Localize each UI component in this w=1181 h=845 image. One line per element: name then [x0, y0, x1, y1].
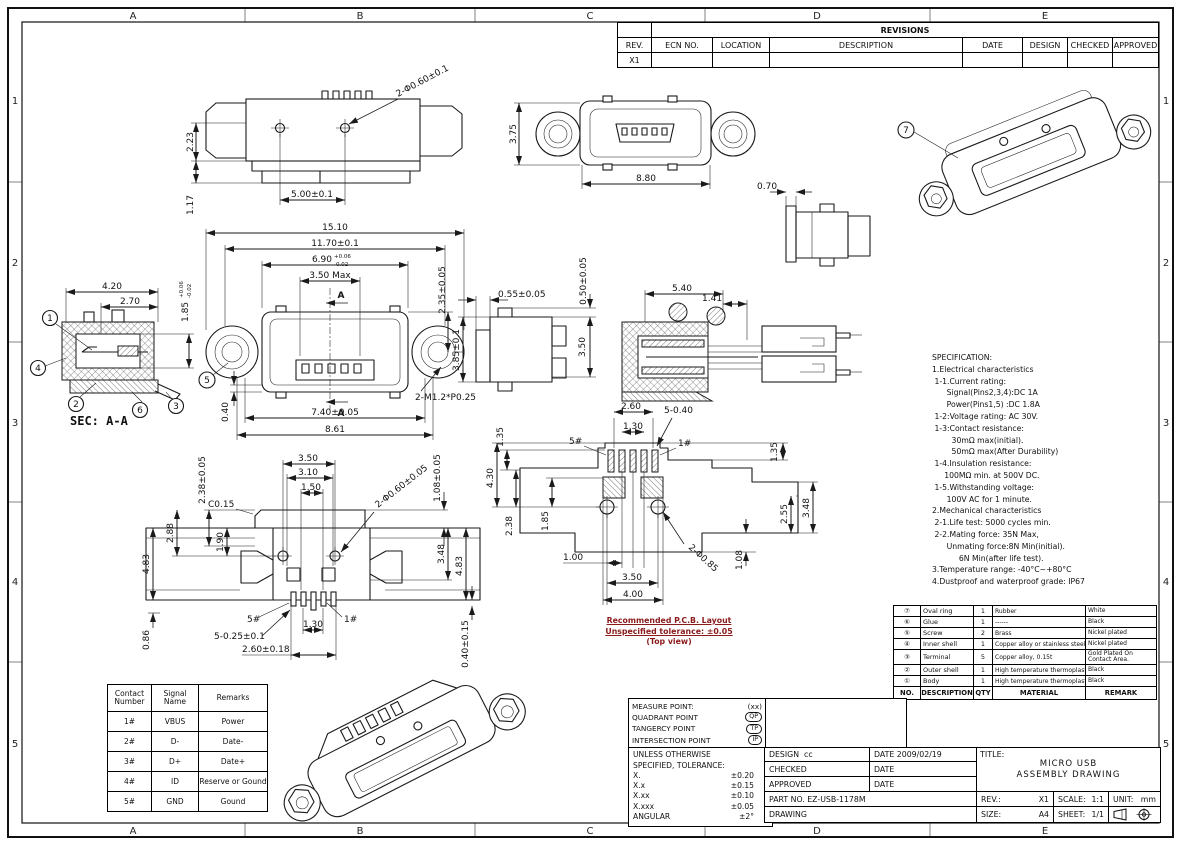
svg-text:3: 3 — [173, 402, 179, 412]
dim-label: 1.08±0.05 — [433, 454, 443, 502]
rev-row-date — [963, 53, 1022, 67]
dim-label: 0.50±0.05 — [579, 257, 589, 305]
section-arrow-label: A — [338, 291, 345, 301]
dim-label: 15.10 — [322, 223, 348, 233]
svg-text:E: E — [1042, 11, 1048, 22]
dim-tol: -0.02 — [334, 262, 348, 268]
contact-signal: GND — [152, 792, 198, 811]
dim-label: 1.41 — [702, 294, 722, 304]
view-side-small: 0.70 — [757, 182, 870, 266]
dim-label: 3.85±0.1 — [452, 329, 462, 371]
dim-label: 2-Φ0.60±0.1 — [395, 64, 451, 100]
pcb-layout-note: Recommended P.C.B. Layout Unspecified to… — [590, 616, 748, 648]
spec-line: Unmating force:8N Min(initial). — [932, 541, 1170, 553]
dim-label: 0.70 — [757, 182, 777, 192]
bom-qty: 1 — [974, 639, 992, 649]
spec-line: 2-2.Mating force: 35N Max, — [932, 529, 1170, 541]
rev-row-checked — [1068, 53, 1112, 67]
bom-remark: Black — [1086, 617, 1156, 627]
bom-desc: Glue — [921, 617, 973, 627]
dim-tol: -0.02 — [187, 284, 193, 298]
dim-label: 4.83 — [142, 554, 152, 574]
scale-cell: SCALE:1:1 — [1054, 792, 1108, 806]
dim-label: 1.50 — [301, 483, 321, 493]
contact-remark: Date- — [199, 732, 267, 751]
contact-num: 2# — [108, 732, 151, 751]
checked-cell: CHECKED — [765, 762, 869, 776]
contact-remark: Date+ — [199, 752, 267, 771]
rev-row-rev: X1 — [618, 53, 651, 67]
dim-label: 2-Φ0.85 — [686, 543, 720, 575]
svg-text:2: 2 — [73, 400, 79, 410]
dim-label: 2.60 — [621, 402, 641, 412]
spec-line: 1.Electrical characteristics — [932, 364, 1170, 376]
dim-label: 1.08 — [735, 550, 745, 570]
sheet-cell: SHEET:1/1 — [1054, 807, 1108, 822]
drawing-title: MICRO USB — [1040, 759, 1098, 770]
bom-remark: Black — [1086, 665, 1156, 675]
svg-text:A: A — [130, 11, 137, 22]
dim-label: C0.15 — [208, 500, 234, 510]
contact-signal: ID — [152, 772, 198, 791]
bom-material: High temperature thermoplastic — [993, 676, 1085, 686]
svg-text:1: 1 — [47, 314, 53, 324]
dim-label: 11.70±0.1 — [311, 239, 359, 249]
section-title: SEC: A-A — [70, 414, 129, 428]
title-label: TITLE: — [980, 750, 1004, 759]
contact-header: Contact Number — [108, 685, 151, 711]
dim-label: 1.35 — [770, 442, 780, 462]
svg-text:D: D — [813, 826, 821, 837]
rev-col-header: DATE — [963, 38, 1022, 52]
tol-value: ±0.10 — [731, 791, 754, 801]
bom-no: ③ — [894, 650, 920, 664]
bom-no: ⑤ — [894, 628, 920, 638]
legend-label: QUADRANT POINT — [632, 713, 698, 722]
dim-tol: +0.06 — [179, 281, 185, 298]
tol-value: ±0.05 — [731, 802, 754, 812]
dim-label: 1.17 — [186, 195, 196, 215]
dim-label: 7.40±0.05 — [311, 408, 359, 418]
dim-label: 0.40±0.15 — [461, 620, 471, 668]
rev-row-approved — [1113, 53, 1158, 67]
bom-desc: Body — [921, 676, 973, 686]
pin-label: 1# — [678, 439, 691, 449]
pcb-note-line: (Top view) — [590, 637, 748, 648]
dim-label: 1.00 — [563, 553, 583, 563]
design-cell: DESIGN cc — [765, 748, 869, 761]
svg-text:3: 3 — [12, 418, 18, 429]
view-section-side: 5.40 1.41 — [622, 284, 862, 401]
bom-header: DESCRIPTION — [921, 687, 973, 699]
rev-row-ecn — [652, 53, 712, 67]
spec-line: 100MΩ min. at 500V DC. — [932, 470, 1170, 482]
spec-line: 30mΩ max(initial). — [932, 435, 1170, 447]
bom-desc: Inner shell — [921, 639, 973, 649]
dim-label: 2-Φ0.60±0.05 — [374, 463, 430, 510]
bom-qty: 1 — [974, 665, 992, 675]
dim-label: 4.30 — [486, 468, 496, 488]
bom-no: ⑥ — [894, 617, 920, 627]
drawing-cell: DRAWING — [765, 807, 978, 822]
size-cell: SIZE:A4 — [977, 807, 1053, 822]
tol-value: ±2° — [739, 812, 754, 822]
spec-line: 100V AC for 1 minute. — [932, 494, 1170, 506]
spec-line: 1-5.Withstanding voltage: — [932, 482, 1170, 494]
bom-desc: Outer shell — [921, 665, 973, 675]
bom-remark: Nickel plated — [1086, 628, 1156, 638]
contact-remark: Gound — [199, 792, 267, 811]
contact-num: 3# — [108, 752, 151, 771]
bom-no: ② — [894, 665, 920, 675]
dim-label: 1.85 — [181, 302, 191, 322]
dim-label: 3.50 — [622, 573, 642, 583]
tol-label: X.xxx — [633, 802, 654, 812]
contact-remark: Reserve or Gound — [199, 772, 267, 791]
rev-row-design — [1023, 53, 1067, 67]
tolerance-box: UNLESS OTHERWISE SPECIFIED, TOLERANCE: X… — [628, 747, 773, 827]
view-sec-aa: 4.20 2.70 1.85 +0.06 -0.02 1 4 2 6 3 SEC… — [31, 281, 195, 428]
spec-line: SPECIFICATION: — [932, 352, 1170, 364]
tolerance-title: UNLESS OTHERWISE — [633, 750, 768, 761]
dim-label: 2-M1.2*P0.25 — [415, 393, 476, 403]
tol-label: X.xx — [633, 791, 650, 801]
bom-remark: Gold Plated On Contact Area. — [1086, 650, 1156, 664]
view-top-profile: 2.23 1.17 5.00±0.1 2-Φ0.60±0.1 — [186, 64, 462, 215]
contact-remark: Power — [199, 712, 267, 731]
contact-num: 5# — [108, 792, 151, 811]
bom-desc: Terminal — [921, 650, 973, 664]
bom-remark: White — [1086, 606, 1156, 616]
revisions-corner-cell — [618, 23, 651, 37]
bom-qty: 2 — [974, 628, 992, 638]
dim-label: 3.75 — [509, 124, 519, 144]
spec-line: 1-1.Current rating: — [932, 376, 1170, 388]
bom-table: ⑦Oval ring1RubberWhite ⑥Glue1------Black… — [893, 605, 1157, 700]
date2-cell: DATE — [870, 762, 978, 776]
view-front-main: A A 15.10 11.70±0.1 6.90 +0.06 -0.02 3.5… — [199, 223, 476, 440]
dim-label: 3.50 — [298, 454, 318, 464]
dim-label: 0.86 — [142, 630, 152, 650]
svg-text:B: B — [357, 11, 364, 22]
svg-text:A: A — [130, 826, 137, 837]
contact-num: 4# — [108, 772, 151, 791]
bom-header: QTY — [974, 687, 992, 699]
view-front-face: 3.75 8.80 — [509, 96, 755, 189]
view-pcb-layout: 2.60 5-0.40 1.30 5# 1# 1.35 4.30 2.38 1.… — [486, 402, 818, 605]
dim-label: 2.23 — [186, 132, 196, 152]
dim-label: 1.90 — [216, 532, 226, 552]
bom-qty: 1 — [974, 676, 992, 686]
dim-label: 6.90 — [312, 255, 332, 265]
contact-signal: D+ — [152, 752, 198, 771]
bom-header: MATERIAL — [993, 687, 1085, 699]
dim-label: 3.50 — [578, 337, 588, 357]
dim-label: 8.61 — [325, 425, 345, 435]
view-isometric-bottom — [263, 648, 531, 837]
projection-cell — [1109, 807, 1160, 822]
dim-label: 2.38 — [505, 516, 515, 536]
dim-label: 3.10 — [298, 468, 318, 478]
part-no-cell: PART NO. EZ-USB-1178M — [765, 792, 978, 806]
revisions-title: REVISIONS — [652, 23, 1158, 37]
tol-label: ANGULAR — [633, 812, 670, 822]
revisions-table: REVISIONS REV. ECN NO. LOCATION DESCRIPT… — [617, 22, 1159, 68]
legend-rows: MEASURE POINT:(xx) QUADRANT POINTQP TANG… — [629, 699, 765, 748]
dim-label: 5.40 — [672, 284, 692, 294]
dim-label: 3.48 — [802, 498, 812, 518]
bom-no: ⑦ — [894, 606, 920, 616]
bom-desc: Screw — [921, 628, 973, 638]
dim-label: 5-0.25±0.1 — [214, 632, 265, 642]
title-box: TITLE: MICRO USB ASSEMBLY DRAWING REV.:X… — [976, 747, 1161, 823]
svg-text:5: 5 — [204, 376, 210, 386]
bom-qty: 1 — [974, 617, 992, 627]
bom-qty: 5 — [974, 650, 992, 664]
contact-signal: VBUS — [152, 712, 198, 731]
tol-label: X. — [633, 771, 641, 781]
rev-cell: REV.:X1 — [977, 792, 1053, 806]
rev-col-header: DESCRIPTION — [770, 38, 962, 52]
spec-line: 6N Min(after life test). — [932, 553, 1170, 565]
balloon-label: 7 — [903, 126, 909, 136]
legend-badge: (xx) — [748, 702, 762, 711]
spec-line: 3.Temperature range: -40°C~+80°C — [932, 564, 1170, 576]
legend-badge: IP — [748, 735, 762, 745]
svg-text:B: B — [357, 826, 364, 837]
pin-label: 1# — [344, 615, 357, 625]
svg-text:5: 5 — [1163, 739, 1169, 750]
tolerance-title: SPECIFIED, TOLERANCE: — [633, 761, 768, 772]
bom-material: High temperature thermoplastic — [993, 665, 1085, 675]
bom-remark: Black — [1086, 676, 1156, 686]
svg-text:D: D — [813, 11, 821, 22]
svg-text:C: C — [587, 11, 594, 22]
rev-col-header: ECN NO. — [652, 38, 712, 52]
spec-line: 50mΩ max(After Durability) — [932, 446, 1170, 458]
spec-line: Signal(Pins2,3,4):DC 1A — [932, 387, 1170, 399]
dim-label: 3.50 Max — [309, 271, 351, 281]
dim-label: 2.60±0.18 — [242, 645, 290, 655]
svg-text:4: 4 — [35, 364, 41, 374]
contact-header: Signal Name — [152, 685, 198, 711]
rev-col-header: DESIGN — [1023, 38, 1067, 52]
spec-line: 2-1.Life test: 5000 cycles min. — [932, 517, 1170, 529]
specification-block: SPECIFICATION: 1.Electrical characterist… — [932, 352, 1170, 588]
rev-col-header: APPROVED — [1113, 38, 1158, 52]
rev-row-description — [770, 53, 962, 67]
bom-header: REMARK — [1086, 687, 1156, 699]
tol-label: X.x — [633, 781, 645, 791]
drawing-sheet: ABCDE ABCDE 12345 12345 2.23 1.17 5.00±0… — [0, 0, 1181, 845]
contact-header: Remarks — [199, 685, 267, 711]
legend-empty-cell — [766, 699, 906, 748]
bom-no: ④ — [894, 639, 920, 649]
bom-qty: 1 — [974, 606, 992, 616]
bom-material: Brass — [993, 628, 1085, 638]
spec-line: Power(Pins1,5) :DC 1.8A — [932, 399, 1170, 411]
dim-label: 5-0.40 — [664, 406, 693, 416]
spec-line: 2.Mechanical characteristics — [932, 505, 1170, 517]
pin-label: 5# — [247, 615, 260, 625]
spec-line: 4.Dustproof and waterproof grade: IP67 — [932, 576, 1170, 588]
legend-label: TANGERCY POINT — [632, 724, 695, 733]
pcb-note-line: Recommended P.C.B. Layout — [590, 616, 748, 627]
svg-text:1: 1 — [12, 96, 18, 107]
dim-label: 4.20 — [102, 282, 122, 292]
dim-label: 2.70 — [120, 297, 140, 307]
bom-material: Rubber — [993, 606, 1085, 616]
contact-table: Contact Number Signal Name Remarks 1#VBU… — [107, 684, 268, 812]
dim-label: 0.55±0.05 — [498, 290, 546, 300]
rev-col-header: CHECKED — [1068, 38, 1112, 52]
pin-label: 5# — [569, 437, 582, 447]
svg-text:2: 2 — [12, 258, 18, 269]
spec-line: 1-4.Insulation resistance: — [932, 458, 1170, 470]
svg-text:6: 6 — [137, 406, 143, 416]
dim-label: 8.80 — [636, 174, 656, 184]
legend-label: INTERSECTION POINT — [632, 736, 710, 745]
rev-col-header: LOCATION — [713, 38, 769, 52]
svg-text:C: C — [587, 826, 594, 837]
svg-text:E: E — [1042, 826, 1048, 837]
spec-line: 1-2:Voltage rating: AC 30V. — [932, 411, 1170, 423]
view-side-section-a: 3.85±0.1 0.55±0.05 0.50±0.05 3.50 — [452, 257, 596, 391]
bom-no: ① — [894, 676, 920, 686]
tol-value: ±0.20 — [731, 771, 754, 781]
date3-cell: DATE — [870, 777, 978, 791]
approval-block: DESIGN cc DATE 2009/02/19 CHECKED DATE A… — [764, 747, 979, 823]
tol-value: ±0.15 — [731, 781, 754, 791]
bom-remark: Nickel plated — [1086, 639, 1156, 649]
date1-cell: DATE 2009/02/19 — [870, 748, 978, 761]
view-bottom-footprint: 3.50 3.10 1.50 2.38±0.05 C0.15 1.90 2.88… — [142, 454, 480, 668]
drawing-title: ASSEMBLY DRAWING — [1017, 770, 1121, 781]
view-isometric-top: 7 — [898, 72, 1156, 232]
dim-label: 4.00 — [623, 590, 643, 600]
svg-text:1: 1 — [1163, 96, 1169, 107]
dim-label: 0.40 — [221, 402, 231, 422]
legend-badge: QP — [745, 712, 762, 722]
bom-material: Copper alloy, 0.15t — [993, 650, 1085, 664]
pcb-note-line: Unspecified tolerance: ±0.05 — [590, 627, 748, 638]
bom-material: ------ — [993, 617, 1085, 627]
rev-col-header: REV. — [618, 38, 651, 52]
title-cell: TITLE: MICRO USB ASSEMBLY DRAWING — [977, 748, 1160, 791]
measure-point-legend: MEASURE POINT:(xx) QUADRANT POINTQP TANG… — [628, 698, 907, 749]
dim-label: 1.30 — [303, 620, 323, 630]
dim-label: 2.88 — [166, 523, 176, 543]
svg-text:2: 2 — [1163, 258, 1169, 269]
unit-cell: UNIT:mm — [1109, 792, 1160, 806]
dim-label: 2.38±0.05 — [198, 456, 208, 504]
svg-text:5: 5 — [12, 739, 18, 750]
dim-label: 4.83 — [455, 556, 465, 576]
third-angle-projection-icon — [1112, 808, 1158, 821]
spec-line: 1-3:Contact resistance: — [932, 423, 1170, 435]
dim-label: 5.00±0.1 — [291, 190, 333, 200]
bom-material: Copper alloy or stainless steel — [993, 639, 1085, 649]
legend-label: MEASURE POINT: — [632, 702, 694, 711]
dim-tol: +0.06 — [334, 254, 351, 260]
contact-signal: D- — [152, 732, 198, 751]
dim-label: 3.48 — [437, 544, 447, 564]
dim-label: 2.35±0.05 — [438, 266, 448, 314]
rev-row-location — [713, 53, 769, 67]
contact-num: 1# — [108, 712, 151, 731]
bom-desc: Oval ring — [921, 606, 973, 616]
svg-text:4: 4 — [12, 577, 18, 588]
approved-cell: APPROVED — [765, 777, 869, 791]
legend-badge: TP — [746, 724, 762, 734]
dim-label: 1.30 — [623, 422, 643, 432]
dim-label: 2.55 — [780, 504, 790, 524]
dim-label: 1.85 — [541, 511, 551, 531]
